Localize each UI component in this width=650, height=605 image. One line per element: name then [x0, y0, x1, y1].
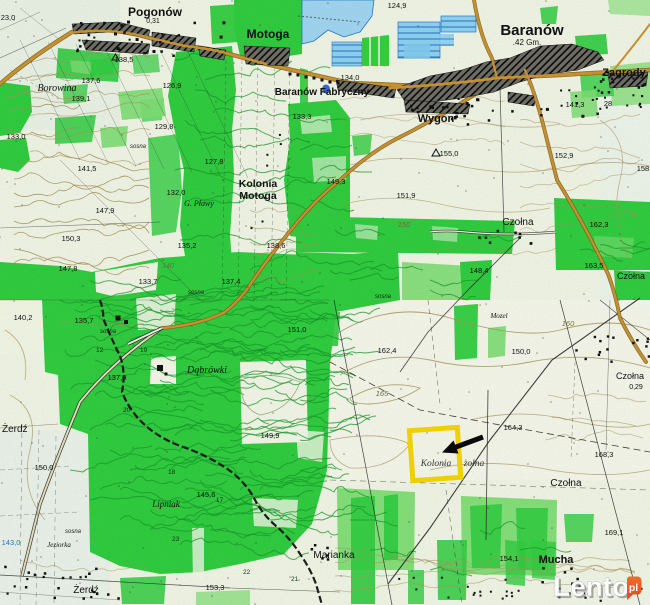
- svg-text:Lento: Lento: [553, 571, 629, 602]
- svg-text:pl: pl: [629, 582, 638, 594]
